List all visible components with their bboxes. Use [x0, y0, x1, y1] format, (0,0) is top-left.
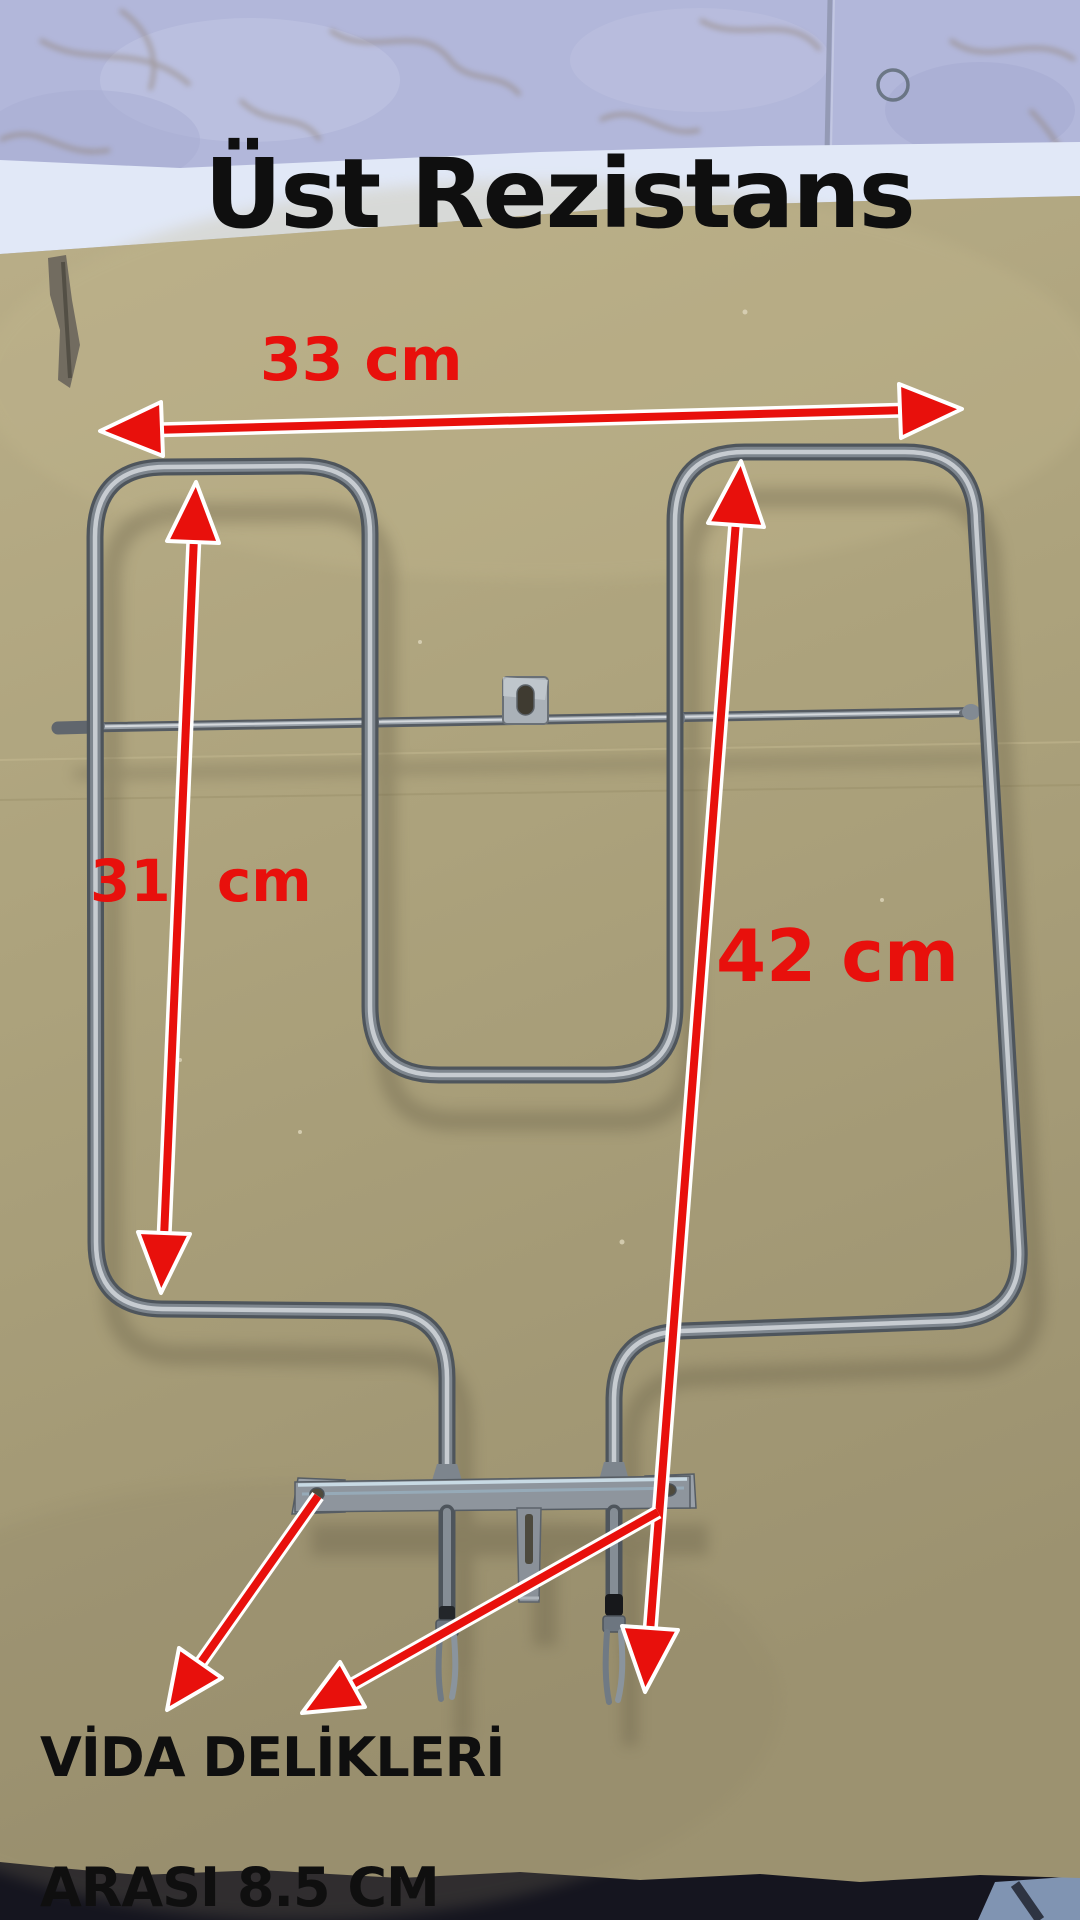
screw-holes-note: VİDA DELİKLERİ ARASI 8.5 CM [40, 1726, 504, 1920]
mounting-bracket-top [503, 677, 548, 724]
product-photo-page: Üst Rezistans 33 cm 31 cm 42 cm VİDA DEL… [0, 0, 1080, 1920]
screw-note-line1: VİDA DELİKLERİ [40, 1726, 504, 1789]
width-measurement-label: 33 cm [260, 330, 462, 390]
bracket-slot-hole [517, 685, 534, 715]
right-height-measurement-label: 42 cm [716, 920, 959, 992]
screw-note-line2: ARASI 8.5 CM [40, 1856, 439, 1919]
left-height-measurement-label: 31 cm [90, 852, 312, 910]
tile-grout-line [827, 0, 830, 152]
page-title: Üst Rezistans [0, 146, 1080, 242]
